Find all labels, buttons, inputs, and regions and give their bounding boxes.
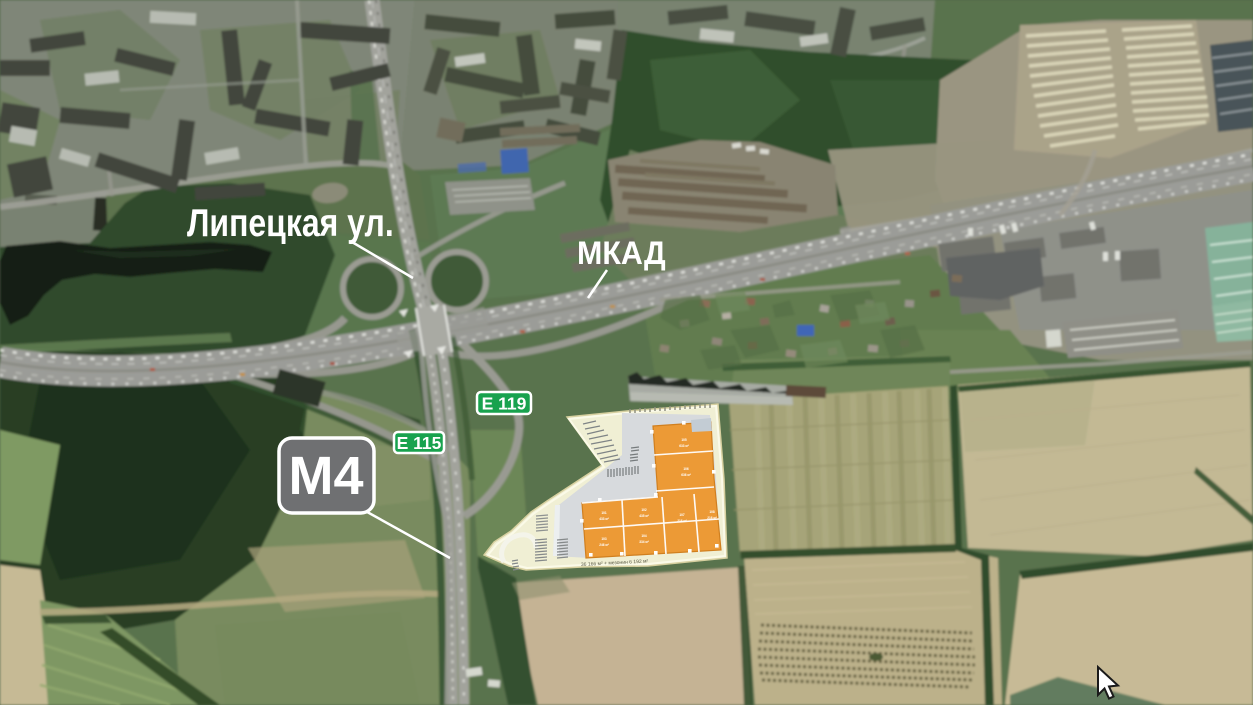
svg-text:216 м²: 216 м² — [707, 516, 717, 520]
svg-text:105: 105 — [681, 438, 687, 442]
svg-text:E 115: E 115 — [397, 433, 442, 453]
svg-text:216 м²: 216 м² — [677, 519, 687, 523]
svg-text:М4: М4 — [288, 446, 363, 506]
svg-text:Липецкая ул.: Липецкая ул. — [187, 201, 394, 245]
svg-text:103: 103 — [601, 537, 607, 541]
svg-text:334 м²: 334 м² — [639, 540, 649, 544]
svg-text:246 м²: 246 м² — [599, 543, 609, 547]
svg-text:636 м²: 636 м² — [681, 473, 691, 477]
svg-text:435 м²: 435 м² — [639, 514, 649, 518]
svg-text:108: 108 — [709, 510, 715, 514]
svg-text:107: 107 — [679, 513, 685, 517]
svg-text:102: 102 — [641, 508, 647, 512]
svg-text:МКАД: МКАД — [577, 235, 666, 271]
svg-text:E 119: E 119 — [482, 394, 527, 414]
svg-text:633 м²: 633 м² — [679, 444, 689, 448]
svg-text:101: 101 — [601, 511, 607, 515]
svg-text:433 м²: 433 м² — [599, 517, 609, 521]
svg-text:104: 104 — [641, 534, 647, 538]
svg-text:106: 106 — [683, 467, 689, 471]
